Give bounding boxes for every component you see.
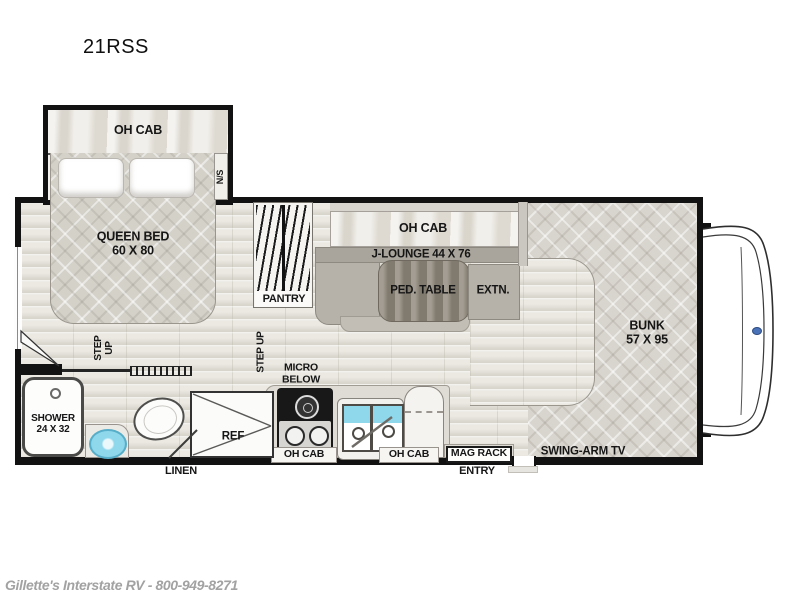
ped-table-label: PED. TABLE <box>390 285 456 298</box>
range-stove <box>277 388 333 452</box>
range-burner-left <box>285 426 305 446</box>
sink-drain-right <box>382 425 395 438</box>
window-left-line <box>17 247 18 349</box>
step-up-left-label: STEP UP <box>93 335 115 360</box>
oh-cab-right-label: OH CAB <box>389 449 429 461</box>
sink-basin-left <box>342 404 372 452</box>
queen-bed-label: QUEEN BED 60 X 80 <box>97 230 170 258</box>
nightstand-label: N/S <box>216 170 226 184</box>
range-burner-top-inner <box>303 403 313 413</box>
micro-below-label: MICRO BELOW <box>282 362 320 385</box>
swing-arm-tv-label: SWING-ARM TV <box>541 446 625 459</box>
range-burner-top <box>295 395 319 419</box>
shower-label: SHOWER 24 X 32 <box>31 413 75 435</box>
window-left <box>14 247 22 349</box>
pillow-left <box>58 158 124 198</box>
brand-watermark: Gillette's Interstate RV - 800-949-8271 <box>5 578 238 593</box>
entry-label: ENTRY <box>459 465 495 477</box>
bath-accordion-door <box>130 366 192 376</box>
ref-label: REF <box>222 431 244 444</box>
floorplan-page: 21RSS OH CAB N/S QUEEN BED 60 X 80 PANTR… <box>0 0 800 600</box>
shower-drain <box>50 388 61 399</box>
cab-windshield-line <box>741 247 743 415</box>
cab-hood-inner <box>703 235 764 427</box>
cab-emblem <box>753 328 762 335</box>
plan-title: 21RSS <box>83 36 149 58</box>
pillow-right <box>129 158 195 198</box>
bath-wall-line <box>62 369 130 372</box>
j-lounge-label: J-LOUNGE 44 X 76 <box>371 249 470 262</box>
sink-water-right <box>373 406 402 423</box>
bedroom-oh-cab-label: OH CAB <box>114 124 162 138</box>
mag-rack-label: MAG RACK <box>451 448 507 460</box>
refrigerator <box>190 391 274 458</box>
sink-drain-left <box>352 427 365 440</box>
oh-cab-left-label: OH CAB <box>284 449 324 461</box>
pantry-hatch-divider <box>282 205 285 291</box>
bunk-label: BUNK 57 X 95 <box>626 319 668 347</box>
cab-hood-outer <box>703 226 773 435</box>
step-up-right-label: STEP UP <box>256 331 267 372</box>
pantry-label: PANTRY <box>263 293 306 305</box>
range-lower-panel <box>279 421 331 449</box>
extension-label: EXTN. <box>477 285 510 298</box>
entry-door <box>512 456 536 466</box>
counter-extension-fold-line <box>405 411 443 413</box>
toilet-seat <box>140 401 181 438</box>
dinette-end-wall <box>518 202 528 266</box>
entry-step <box>508 466 538 473</box>
dinette-oh-cab-label: OH CAB <box>399 222 447 236</box>
bath-wall <box>18 364 62 375</box>
cab-front <box>698 223 773 437</box>
range-burner-right <box>309 426 329 446</box>
sink-water-left <box>344 406 370 423</box>
sink-basin-right <box>371 404 404 452</box>
wall-right <box>697 197 703 465</box>
linen-label: LINEN <box>165 465 197 477</box>
bath-sink-bowl <box>89 429 127 459</box>
